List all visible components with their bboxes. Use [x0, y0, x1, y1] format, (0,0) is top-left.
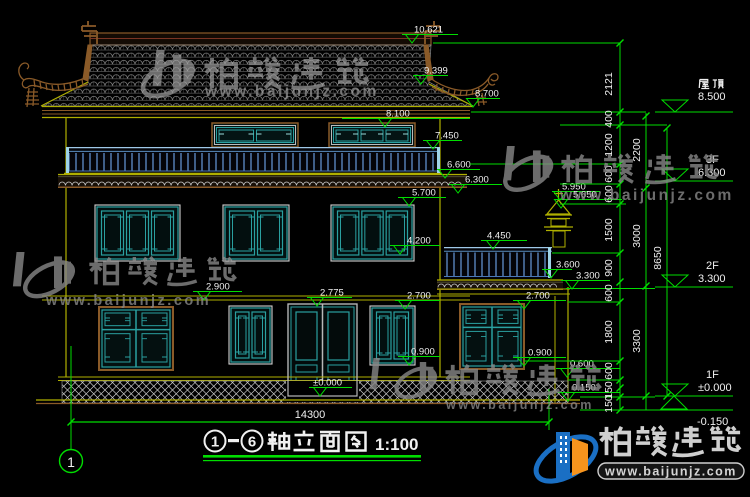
svg-text:0.900: 0.900 [411, 347, 435, 358]
svg-text:±0.000: ±0.000 [698, 382, 732, 394]
svg-text:3.300: 3.300 [698, 273, 726, 285]
svg-text:0.900: 0.900 [528, 348, 552, 359]
svg-text:8.100: 8.100 [386, 109, 410, 120]
svg-text:4.450: 4.450 [487, 231, 511, 242]
svg-text:5.700: 5.700 [412, 188, 436, 199]
svg-text:2F: 2F [706, 260, 719, 272]
svg-text:900: 900 [603, 259, 615, 277]
svg-text:400: 400 [603, 110, 615, 128]
svg-text:www.baijunjz.com: www.baijunjz.com [604, 465, 737, 479]
svg-text:4.200: 4.200 [407, 236, 431, 247]
svg-text:150: 150 [603, 395, 615, 413]
svg-text:2.700: 2.700 [526, 291, 550, 302]
svg-text:3300: 3300 [631, 329, 643, 353]
svg-text:600: 600 [603, 284, 615, 302]
svg-text:2121: 2121 [603, 72, 615, 96]
svg-text:2.700: 2.700 [407, 291, 431, 302]
svg-text:600: 600 [603, 362, 615, 380]
svg-text:6: 6 [248, 434, 256, 451]
svg-text:www.baijunjz.com: www.baijunjz.com [45, 293, 211, 309]
svg-text:3000: 3000 [631, 224, 643, 248]
svg-text:2.775: 2.775 [320, 288, 344, 299]
svg-text:1200: 1200 [603, 133, 615, 157]
svg-text:1F: 1F [706, 369, 719, 381]
svg-text:10.621: 10.621 [414, 25, 443, 36]
svg-text:www.baijunjz.com: www.baijunjz.com [445, 398, 594, 412]
svg-text:2.900: 2.900 [206, 282, 230, 293]
svg-text:1500: 1500 [603, 218, 615, 242]
svg-text:8.500: 8.500 [698, 91, 726, 103]
svg-text:1800: 1800 [603, 320, 615, 344]
svg-text:14300: 14300 [295, 409, 326, 421]
svg-text:8.700: 8.700 [475, 89, 499, 100]
svg-text:6.600: 6.600 [447, 160, 471, 171]
svg-text:3.300: 3.300 [576, 271, 600, 282]
svg-text:1:100: 1:100 [375, 435, 418, 454]
svg-text:1: 1 [211, 434, 219, 451]
svg-text:8650: 8650 [652, 246, 664, 270]
svg-text:6.300: 6.300 [465, 175, 489, 186]
svg-text:600: 600 [603, 165, 615, 183]
svg-text:9.399: 9.399 [424, 66, 448, 77]
svg-text:www.baijunjz.com: www.baijunjz.com [559, 187, 734, 204]
svg-text:7.450: 7.450 [435, 131, 459, 142]
svg-text:3.600: 3.600 [556, 260, 580, 271]
svg-text:2200: 2200 [631, 138, 643, 162]
svg-text:±0.000: ±0.000 [313, 378, 342, 389]
svg-text:1: 1 [67, 454, 75, 470]
